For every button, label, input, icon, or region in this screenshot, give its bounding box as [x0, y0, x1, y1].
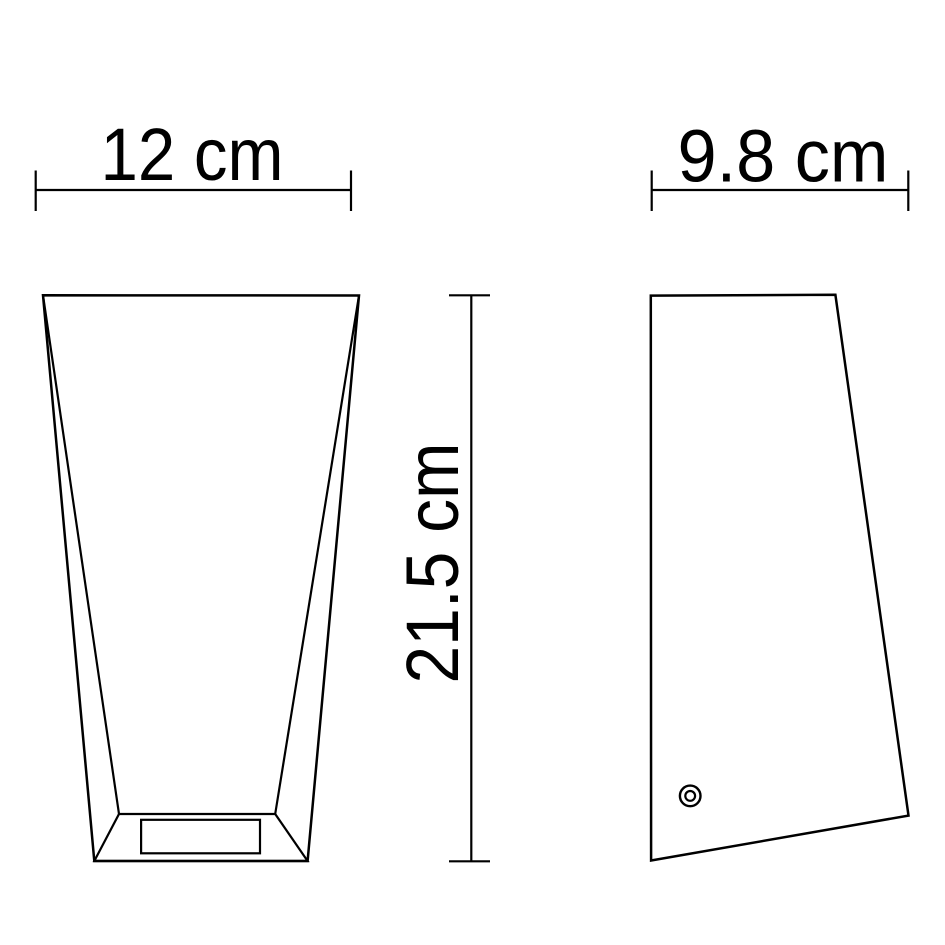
- svg-text:9.8 cm: 9.8 cm: [678, 115, 889, 198]
- svg-text:21.5 cm: 21.5 cm: [391, 443, 474, 684]
- svg-text:12 cm: 12 cm: [101, 113, 284, 196]
